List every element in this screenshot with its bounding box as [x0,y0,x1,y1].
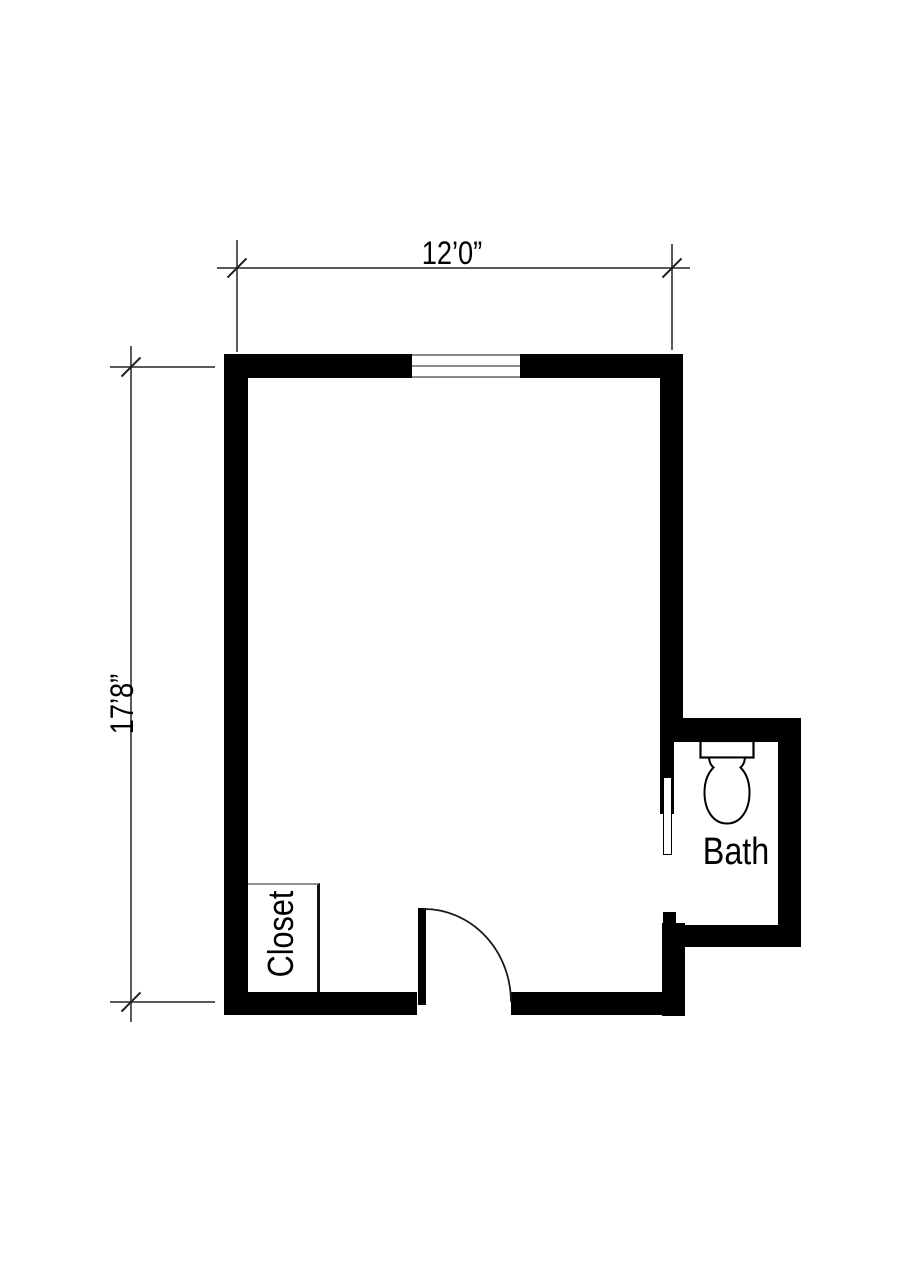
toilet-plan-symbol [701,741,754,824]
toilet-tank [701,741,754,758]
fixtures-overlay [0,0,900,1273]
quarter-circle-door-swing [424,909,511,1002]
floor-plan: 12’0” 17’8” Closet Bath [0,0,900,1273]
toilet-bowl [705,758,750,824]
